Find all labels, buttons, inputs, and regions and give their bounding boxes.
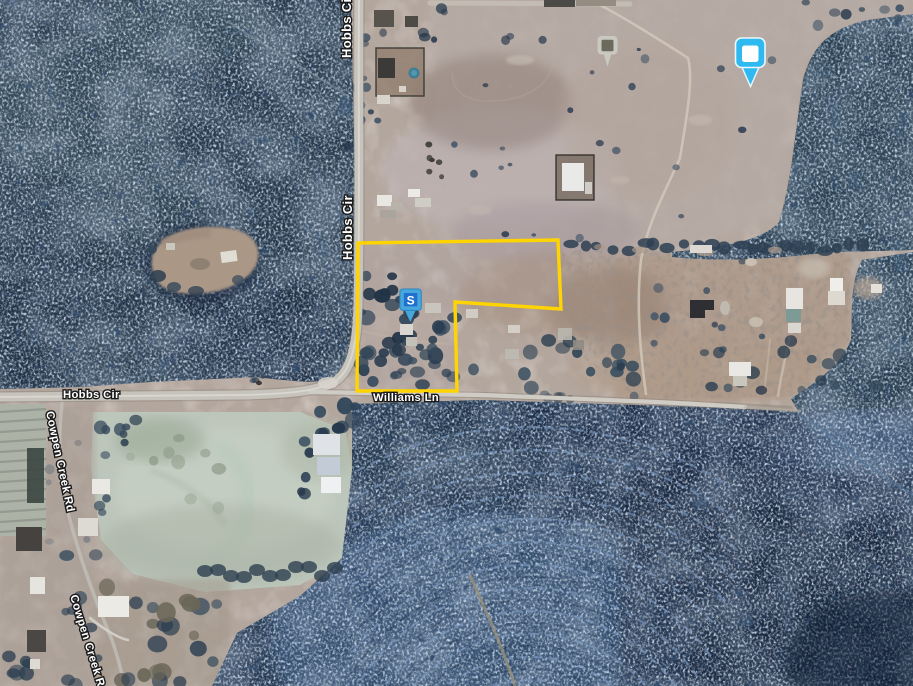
svg-text:Williams Ln: Williams Ln (373, 392, 439, 404)
svg-text:Hobbs Cir: Hobbs Cir (63, 389, 120, 401)
svg-text:Hobbs Cir: Hobbs Cir (340, 195, 355, 260)
svg-text:S: S (407, 294, 415, 308)
svg-text:Hobbs Cir: Hobbs Cir (339, 0, 354, 58)
